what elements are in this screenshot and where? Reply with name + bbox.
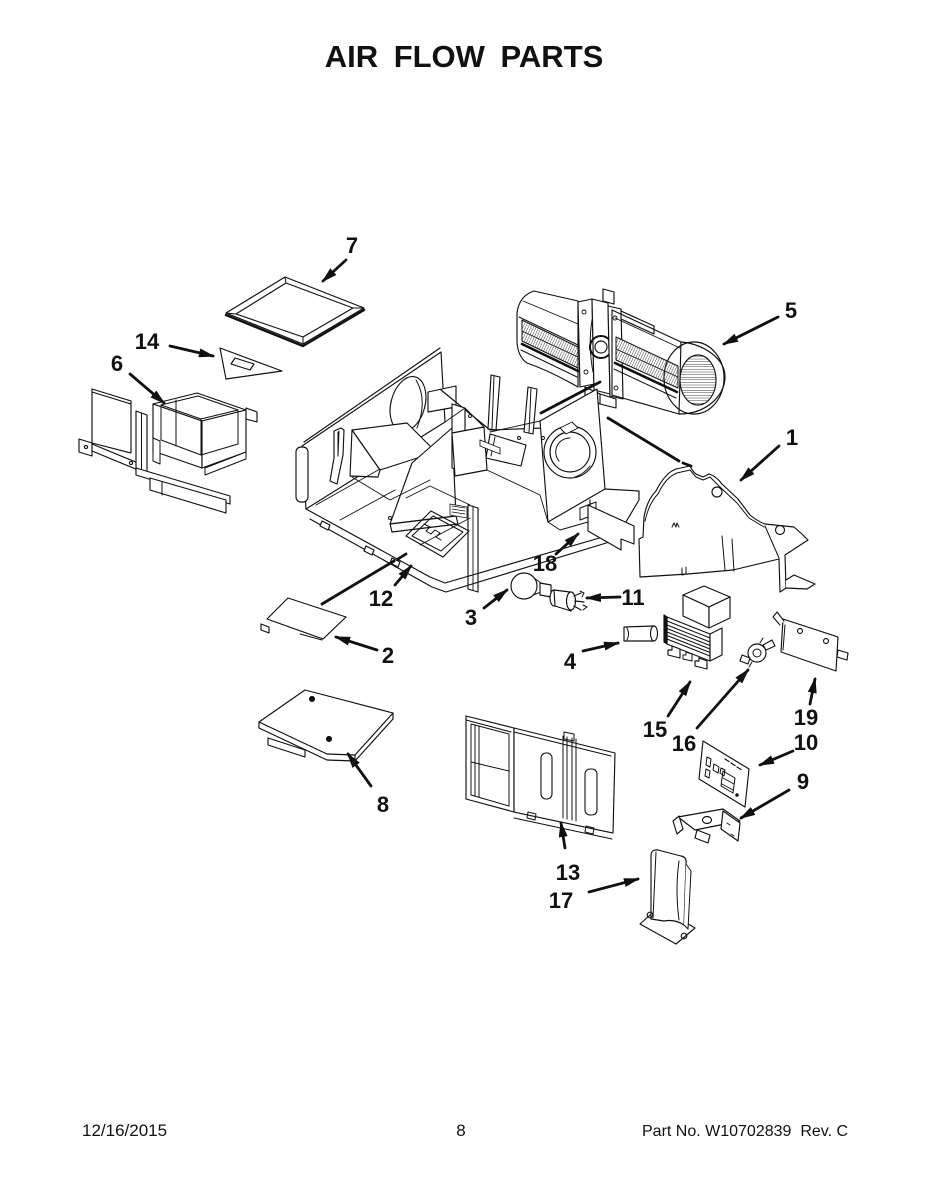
- svg-text:7: 7: [346, 233, 358, 258]
- svg-text:3: 3: [465, 605, 477, 630]
- svg-text:4: 4: [564, 649, 577, 674]
- svg-text:Part No. W10702839 Rev. C: Part No. W10702839 Rev. C: [642, 1123, 848, 1140]
- svg-text:13: 13: [556, 860, 580, 885]
- svg-text:5: 5: [785, 298, 797, 323]
- svg-text:11: 11: [621, 585, 644, 610]
- svg-text:12: 12: [369, 586, 393, 611]
- svg-text:8: 8: [377, 792, 389, 817]
- svg-text:16: 16: [672, 731, 696, 756]
- svg-text:6: 6: [111, 351, 123, 376]
- svg-text:19: 19: [794, 705, 818, 730]
- svg-text:8: 8: [456, 1121, 465, 1140]
- svg-text:12/16/2015: 12/16/2015: [82, 1121, 167, 1140]
- svg-text:14: 14: [135, 329, 160, 354]
- svg-text:9: 9: [797, 769, 809, 794]
- svg-text:1: 1: [786, 425, 798, 450]
- svg-text:17: 17: [549, 888, 573, 913]
- svg-text:AIR FLOW PARTS: AIR FLOW PARTS: [325, 39, 604, 74]
- svg-text:18: 18: [533, 551, 557, 576]
- svg-text:2: 2: [382, 643, 394, 668]
- svg-text:15: 15: [643, 717, 667, 742]
- svg-text:10: 10: [794, 730, 818, 755]
